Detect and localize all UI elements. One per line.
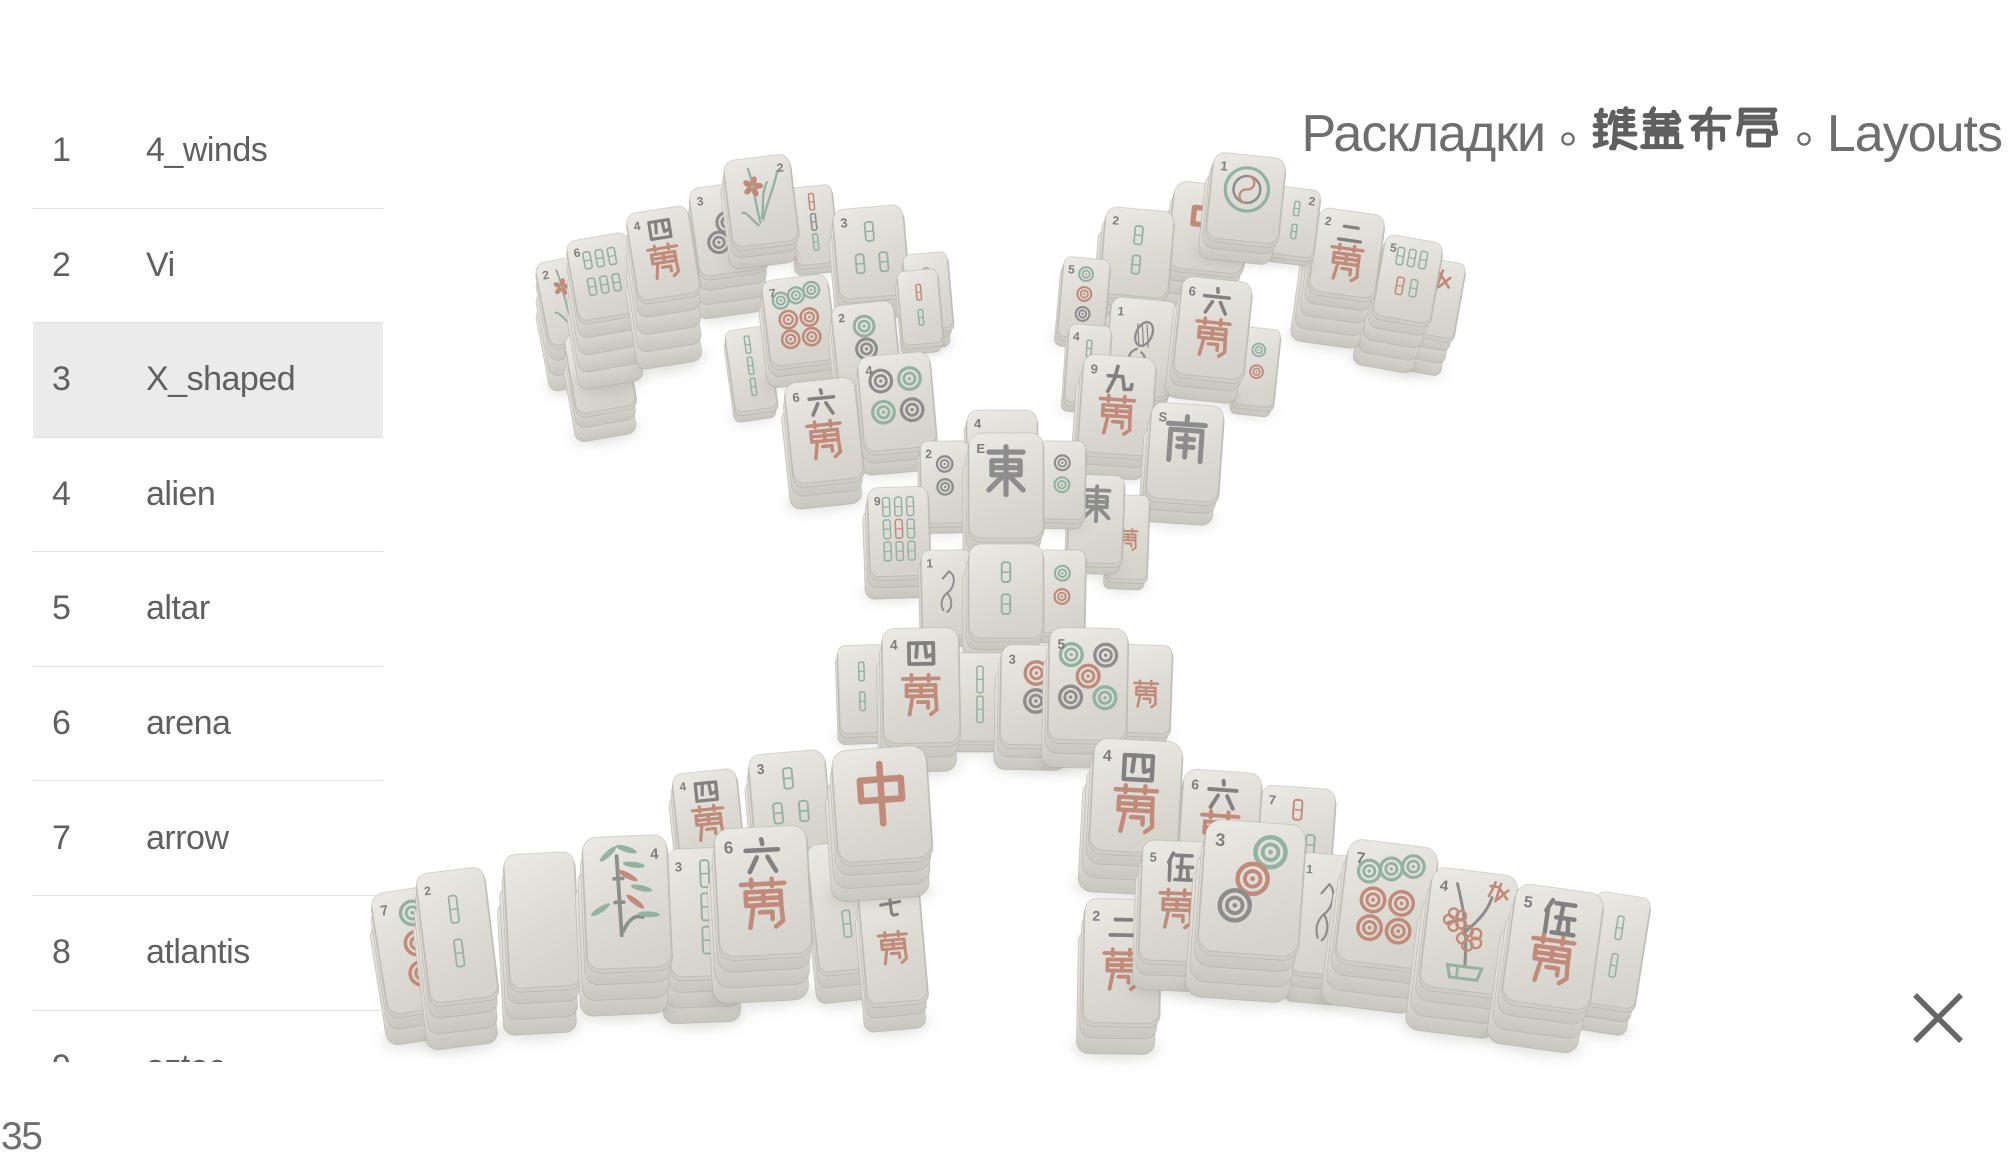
svg-text:4: 4 bbox=[1073, 329, 1081, 343]
svg-text:6: 6 bbox=[723, 838, 733, 857]
svg-text:3: 3 bbox=[1008, 652, 1015, 667]
svg-text:6: 6 bbox=[1191, 776, 1200, 793]
svg-text:E: E bbox=[976, 441, 985, 456]
svg-text:9: 9 bbox=[874, 494, 881, 508]
svg-text:4: 4 bbox=[650, 846, 660, 863]
svg-text:5: 5 bbox=[1057, 636, 1065, 652]
svg-text:4: 4 bbox=[974, 416, 982, 431]
svg-text:2: 2 bbox=[1092, 908, 1100, 924]
svg-text:3: 3 bbox=[675, 859, 683, 874]
svg-text:4: 4 bbox=[1102, 748, 1112, 765]
svg-text:1: 1 bbox=[926, 556, 933, 570]
svg-text:4: 4 bbox=[890, 637, 898, 653]
svg-text:3: 3 bbox=[1215, 830, 1226, 851]
svg-text:7: 7 bbox=[1268, 792, 1276, 807]
svg-text:S: S bbox=[1158, 409, 1168, 425]
svg-text:3: 3 bbox=[840, 215, 849, 231]
svg-text:2: 2 bbox=[925, 447, 932, 461]
svg-text:5: 5 bbox=[1149, 849, 1157, 864]
svg-text:3: 3 bbox=[756, 761, 765, 778]
svg-text:9: 9 bbox=[1090, 361, 1098, 376]
